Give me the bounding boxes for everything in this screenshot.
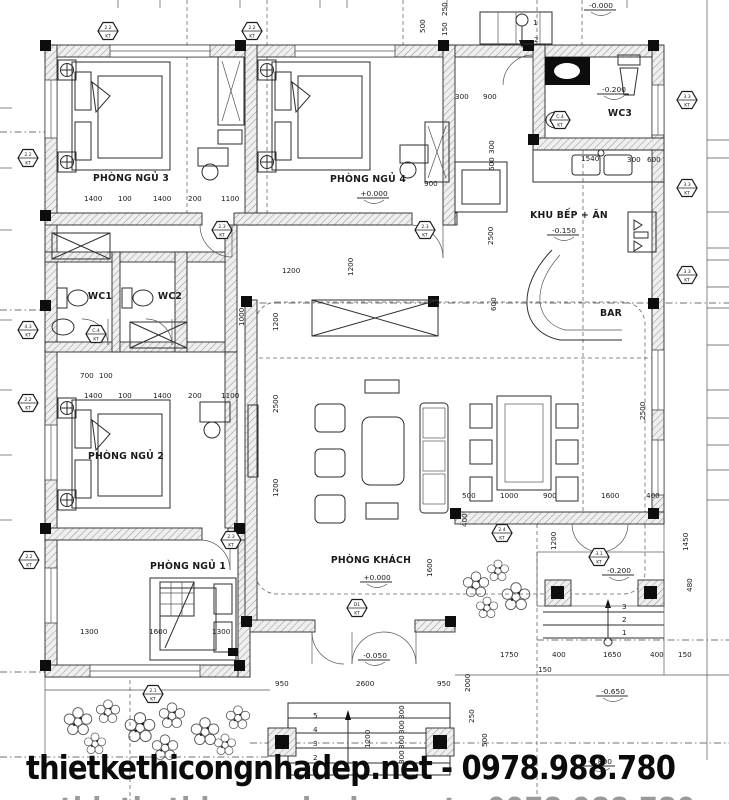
dim-label: 950 [437,679,451,688]
section-marker-number: 3.3 [683,94,690,100]
dim-label: 1600 [425,558,434,577]
dim-label: 1200 [271,312,280,331]
dim-label: 400 [650,650,664,659]
side-porch-column [545,580,571,606]
section-marker-number: 2.3 [227,534,234,540]
section-marker: 2.2KT [98,23,118,40]
section-marker-number: 2.2 [248,25,255,31]
section-marker: 3.1KT [589,549,609,566]
room-label: BAR [600,308,622,319]
dim-label: 2500 [486,226,495,245]
room-label: WC3 [608,108,632,119]
section-marker: 2.4KT [492,525,512,542]
level-arc [554,237,574,241]
dim-label: 1650 [603,650,622,659]
section-marker: 2.2KT [18,150,38,167]
level-mark: -0.000 [589,1,613,10]
dim-label: 480 [685,578,694,592]
dim-label: 600 [487,157,496,171]
section-marker: 2.2KT [19,552,39,569]
dim-label: 1400 [153,391,172,400]
level-mark: +0.000 [360,189,388,198]
room-label: WC2 [158,291,182,302]
dim-label: 200 [188,391,202,400]
section-marker-sheet: KT [249,34,255,40]
dim-label: 300 [627,155,641,164]
section-marker-sheet: KT [228,543,234,549]
section-marker-sheet: KT [684,278,690,284]
room-label: PHÒNG NGỦ 3 [93,171,169,184]
dim-label: 2 [622,615,627,624]
section-marker-number: D1 [354,602,361,608]
section-marker: 2.3KT [221,532,241,549]
section-marker-sheet: KT [150,697,156,703]
window [652,440,664,495]
dim-label: 1000 [237,307,246,326]
section-marker-number: C.4 [92,328,100,334]
dim-label: 600 [489,297,498,311]
window [110,45,210,57]
dim-label: 1200 [363,729,372,748]
level-arc [609,577,629,581]
section-marker-sheet: KT [596,560,602,566]
dim-label: 900 [424,179,438,188]
section-marker-sheet: KT [684,191,690,197]
dim-label: 1600 [601,491,620,500]
service-stair-top [480,12,552,48]
section-marker-number: 2.2 [104,25,111,31]
dim-label: 250 [467,709,476,723]
section-markers: 2.2KT2.2KT2.2KT4.3KT2.2KT2.2KT2.3KT2.3KT… [18,23,697,703]
dim-label: 2500 [271,394,280,413]
dim-label: 150 [538,665,552,674]
section-marker-sheet: KT [499,536,505,542]
dim-label: 3 [622,602,627,611]
section-marker-sheet: KT [105,34,111,40]
section-marker-sheet: KT [354,611,360,617]
dim-label: 1450 [681,532,690,551]
section-marker: 3.3KT [677,267,697,284]
section-marker-sheet: KT [557,123,563,129]
dim-label: 100 [118,194,132,203]
window [295,45,395,57]
section-marker: 2.3KT [415,222,435,239]
section-marker-sheet: KT [219,233,225,239]
dim-label: 2000 [463,673,472,692]
dim-label: 1600 [149,627,168,636]
dim-label: 300 [397,705,406,719]
section-marker-number: 2.2 [25,554,32,560]
floor-plan-drawing: 2.2KT2.2KT2.2KT4.3KT2.2KT2.2KT2.3KT2.3KT… [0,0,729,800]
room-label: KHU BẾP + ĂN [530,208,608,221]
dim-label: 200 [188,194,202,203]
section-marker-number: 4.3 [24,324,31,330]
dim-label: 700 [80,371,94,380]
section-marker: 2.2KT [242,23,262,40]
dim-label: 100 [118,391,132,400]
room-label: WC1 [88,291,112,302]
level-arc [603,698,623,702]
dim-label: 1400 [153,194,172,203]
desk-bedroom3 [198,130,242,180]
window [652,85,664,135]
level-arc [364,200,384,204]
dim-label: 1540 [581,154,600,163]
dim-label: 400 [552,650,566,659]
section-marker-number: C.4 [556,114,564,120]
section-marker-sheet: KT [684,103,690,109]
bed-bedroom3 [58,60,170,172]
dim-label: 3 [313,739,318,748]
section-marker-sheet: KT [422,233,428,239]
room-label: PHÒNG NGỦ 4 [330,172,406,185]
section-marker-number: 2.2 [24,152,31,158]
window [45,80,57,138]
dim-label: 900 [483,92,497,101]
section-marker-sheet: KT [25,333,31,339]
room-label: PHÒNG KHÁCH [331,554,411,566]
dim-label: 150 [678,650,692,659]
dim-label: 250 [440,2,449,16]
dim-label: 2600 [356,679,375,688]
watermark-text: thietkethicongnhadep.net - 0978.988.780 [26,748,675,787]
dim-label: 4 [313,725,318,734]
dim-label: 500 [480,733,489,747]
section-marker: 2.2KT [18,395,38,412]
dim-label: 1200 [549,531,558,550]
level-arc [367,584,387,588]
floor-plan-page: 2.2KT2.2KT2.2KT4.3KT2.2KT2.2KT2.3KT2.3KT… [0,0,729,800]
section-marker-sheet: KT [93,337,99,343]
dim-label: 300 [397,735,406,749]
window [652,350,664,410]
dim-label: 1300 [212,627,231,636]
level-arc [365,662,385,666]
dim-label: 1000 [500,491,519,500]
dim-label: 300 [487,140,496,154]
section-marker: C.4KT [550,112,570,129]
section-marker-number: 3.1 [595,551,602,557]
dim-label: 500 [462,491,476,500]
dim-label: 1400 [84,391,103,400]
dining-set [470,396,578,501]
dim-label: 300 [397,720,406,734]
section-marker-number: 3.3 [683,269,690,275]
section-marker-sheet: KT [25,161,31,167]
window [45,568,57,623]
dim-label: 2500 [638,401,647,420]
dim-label: 1 [533,18,538,27]
dim-label: 100 [99,371,113,380]
dim-label: 1200 [282,266,301,275]
section-marker-sheet: KT [25,406,31,412]
section-marker: 2.3KT [212,222,232,239]
window [45,425,57,480]
section-marker-number: 2.3 [218,224,225,230]
dim-label: 1100 [221,391,240,400]
window [90,665,200,677]
section-marker-number: 2.2 [24,397,31,403]
wardrobe-bedroom3 [218,57,244,125]
section-marker-number: 3.3 [683,182,690,188]
level-mark: +0.000 [363,573,391,582]
dim-label: 1300 [80,627,99,636]
dim-label: 600 [647,155,661,164]
dim-label: 300 [455,92,469,101]
level-mark: -0.650 [601,687,625,696]
dim-label: 1400 [84,194,103,203]
section-marker: C.4KT [86,326,106,343]
dim-label: 400 [646,491,660,500]
level-mark: -0.200 [607,566,631,575]
wc2-fixtures [122,288,153,308]
section-marker: 3.3KT [677,92,697,109]
dim-label: 500 [418,19,427,33]
dim-label: 900 [543,491,557,500]
section-marker: D1KT [347,600,367,617]
dim-label: 1750 [500,650,519,659]
level-arc [604,96,624,100]
room-label: PHÒNG NGỦ 2 [88,449,164,462]
section-marker-sheet: KT [26,563,32,569]
section-marker-number: 2.1 [149,688,156,694]
dim-label: 2 [534,35,539,44]
columns [40,40,659,671]
side-porch-column [638,580,664,606]
level-mark: -0.200 [602,85,626,94]
room-label: PHÒNG NGỦ 1 [150,559,226,572]
dim-label: 1 [622,628,627,637]
garden [64,560,530,760]
dim-label: 5 [313,711,318,720]
dim-label: 150 [440,22,449,36]
bar-counter [527,250,622,340]
dim-label: 1100 [221,194,240,203]
section-marker-number: 2.4 [498,527,505,533]
section-marker: 2.1KT [143,686,163,703]
section-marker: 4.3KT [18,322,38,339]
dim-label: 1200 [346,257,355,276]
level-mark: -0.150 [552,226,576,235]
watermark-text-cropped: thietkethicongnhadep.net - 0978.988.780 [60,792,695,800]
dim-label: 950 [275,679,289,688]
dim-label: 400 [460,513,469,527]
section-marker-number: 2.3 [421,224,428,230]
section-marker: 3.3KT [677,180,697,197]
level-mark: -0.050 [363,651,387,660]
level-arc [591,12,611,16]
bed-bedroom1 [150,578,238,660]
bed-bedroom4 [258,60,370,172]
dim-label: 1200 [271,478,280,497]
